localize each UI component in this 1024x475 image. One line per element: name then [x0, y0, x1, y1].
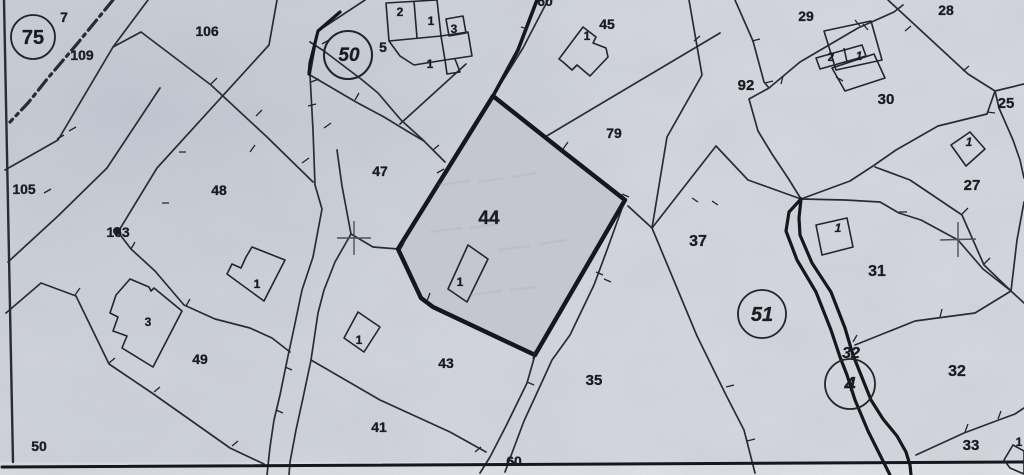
- svg-text:1: 1: [835, 221, 842, 235]
- svg-text:32: 32: [948, 363, 966, 380]
- svg-text:25: 25: [998, 95, 1015, 112]
- svg-text:1: 1: [254, 277, 261, 291]
- svg-text:35: 35: [586, 372, 603, 389]
- svg-text:28: 28: [938, 2, 954, 18]
- svg-text:29: 29: [798, 8, 814, 24]
- svg-text:105: 105: [12, 181, 36, 197]
- svg-text:5: 5: [379, 39, 387, 55]
- svg-text:1: 1: [584, 29, 591, 43]
- svg-text:4: 4: [843, 374, 855, 396]
- svg-text:50: 50: [31, 438, 47, 454]
- svg-text:1: 1: [428, 14, 435, 28]
- svg-text:106: 106: [195, 23, 219, 39]
- svg-text:2: 2: [828, 50, 835, 64]
- svg-text:60: 60: [537, 0, 553, 9]
- svg-text:60: 60: [506, 453, 522, 469]
- svg-text:1: 1: [427, 57, 434, 71]
- svg-text:31: 31: [868, 263, 886, 280]
- svg-text:1: 1: [966, 135, 973, 149]
- svg-text:45: 45: [599, 16, 615, 32]
- svg-text:51: 51: [751, 304, 773, 326]
- svg-text:50: 50: [338, 45, 360, 66]
- svg-text:2: 2: [397, 5, 404, 19]
- svg-text:7: 7: [60, 9, 68, 25]
- svg-text:92: 92: [738, 77, 755, 94]
- svg-text:3: 3: [145, 315, 152, 329]
- svg-text:75: 75: [22, 27, 44, 49]
- svg-text:1: 1: [457, 275, 464, 289]
- svg-text:32: 32: [842, 345, 860, 362]
- svg-text:109: 109: [70, 47, 94, 63]
- svg-text:49: 49: [192, 351, 208, 367]
- svg-text:1: 1: [356, 333, 363, 347]
- svg-text:27: 27: [964, 177, 981, 194]
- svg-text:33: 33: [963, 437, 980, 454]
- svg-text:47: 47: [372, 163, 388, 179]
- svg-text:37: 37: [689, 233, 707, 250]
- svg-text:79: 79: [606, 125, 622, 141]
- svg-text:48: 48: [211, 182, 227, 198]
- svg-text:1: 1: [1016, 435, 1023, 449]
- svg-text:43: 43: [438, 355, 454, 371]
- svg-text:1: 1: [856, 49, 863, 63]
- svg-text:41: 41: [371, 419, 387, 435]
- svg-text:30: 30: [878, 91, 895, 108]
- svg-text:3: 3: [451, 22, 458, 36]
